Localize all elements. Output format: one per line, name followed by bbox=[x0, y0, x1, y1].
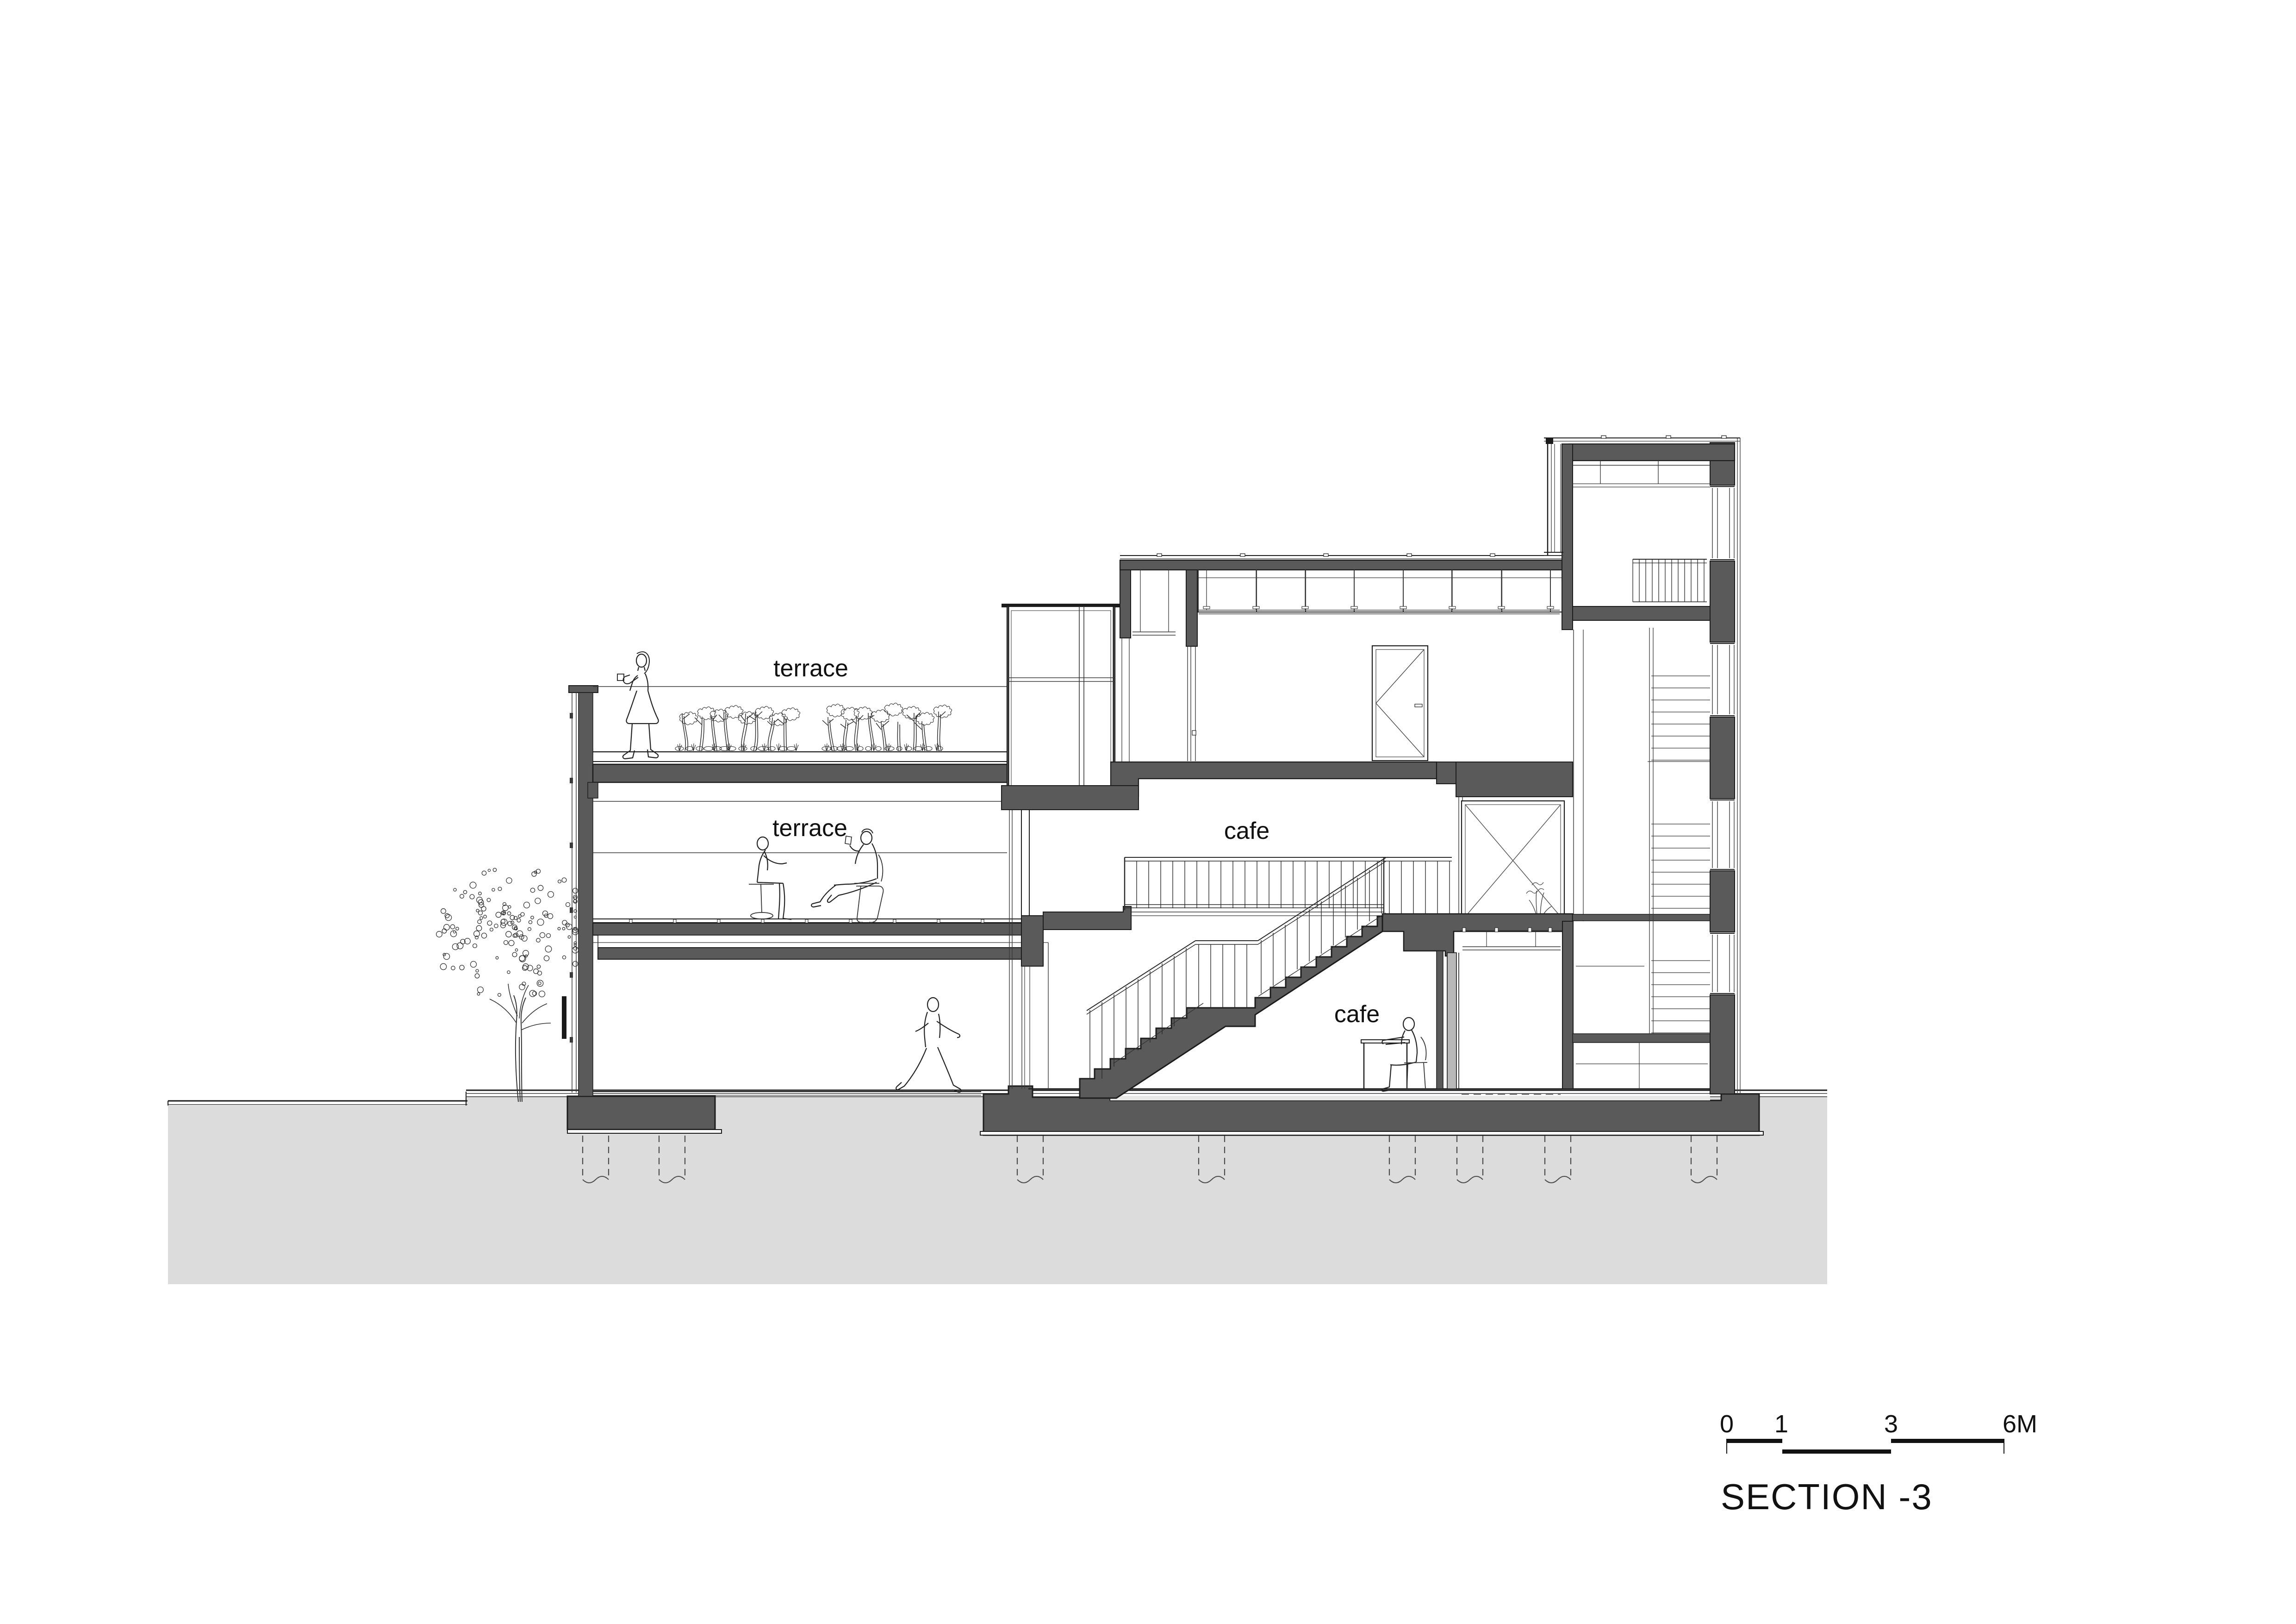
svg-text:3: 3 bbox=[1884, 1410, 1898, 1438]
svg-text:SECTION -3: SECTION -3 bbox=[1721, 1476, 1933, 1517]
svg-text:cafe: cafe bbox=[1224, 818, 1269, 844]
svg-text:6M: 6M bbox=[2003, 1410, 2037, 1438]
svg-text:cafe: cafe bbox=[1334, 1001, 1380, 1028]
svg-text:0: 0 bbox=[1720, 1410, 1734, 1438]
svg-text:terrace: terrace bbox=[772, 815, 847, 842]
svg-text:1: 1 bbox=[1774, 1410, 1788, 1438]
svg-text:terrace: terrace bbox=[773, 655, 848, 682]
